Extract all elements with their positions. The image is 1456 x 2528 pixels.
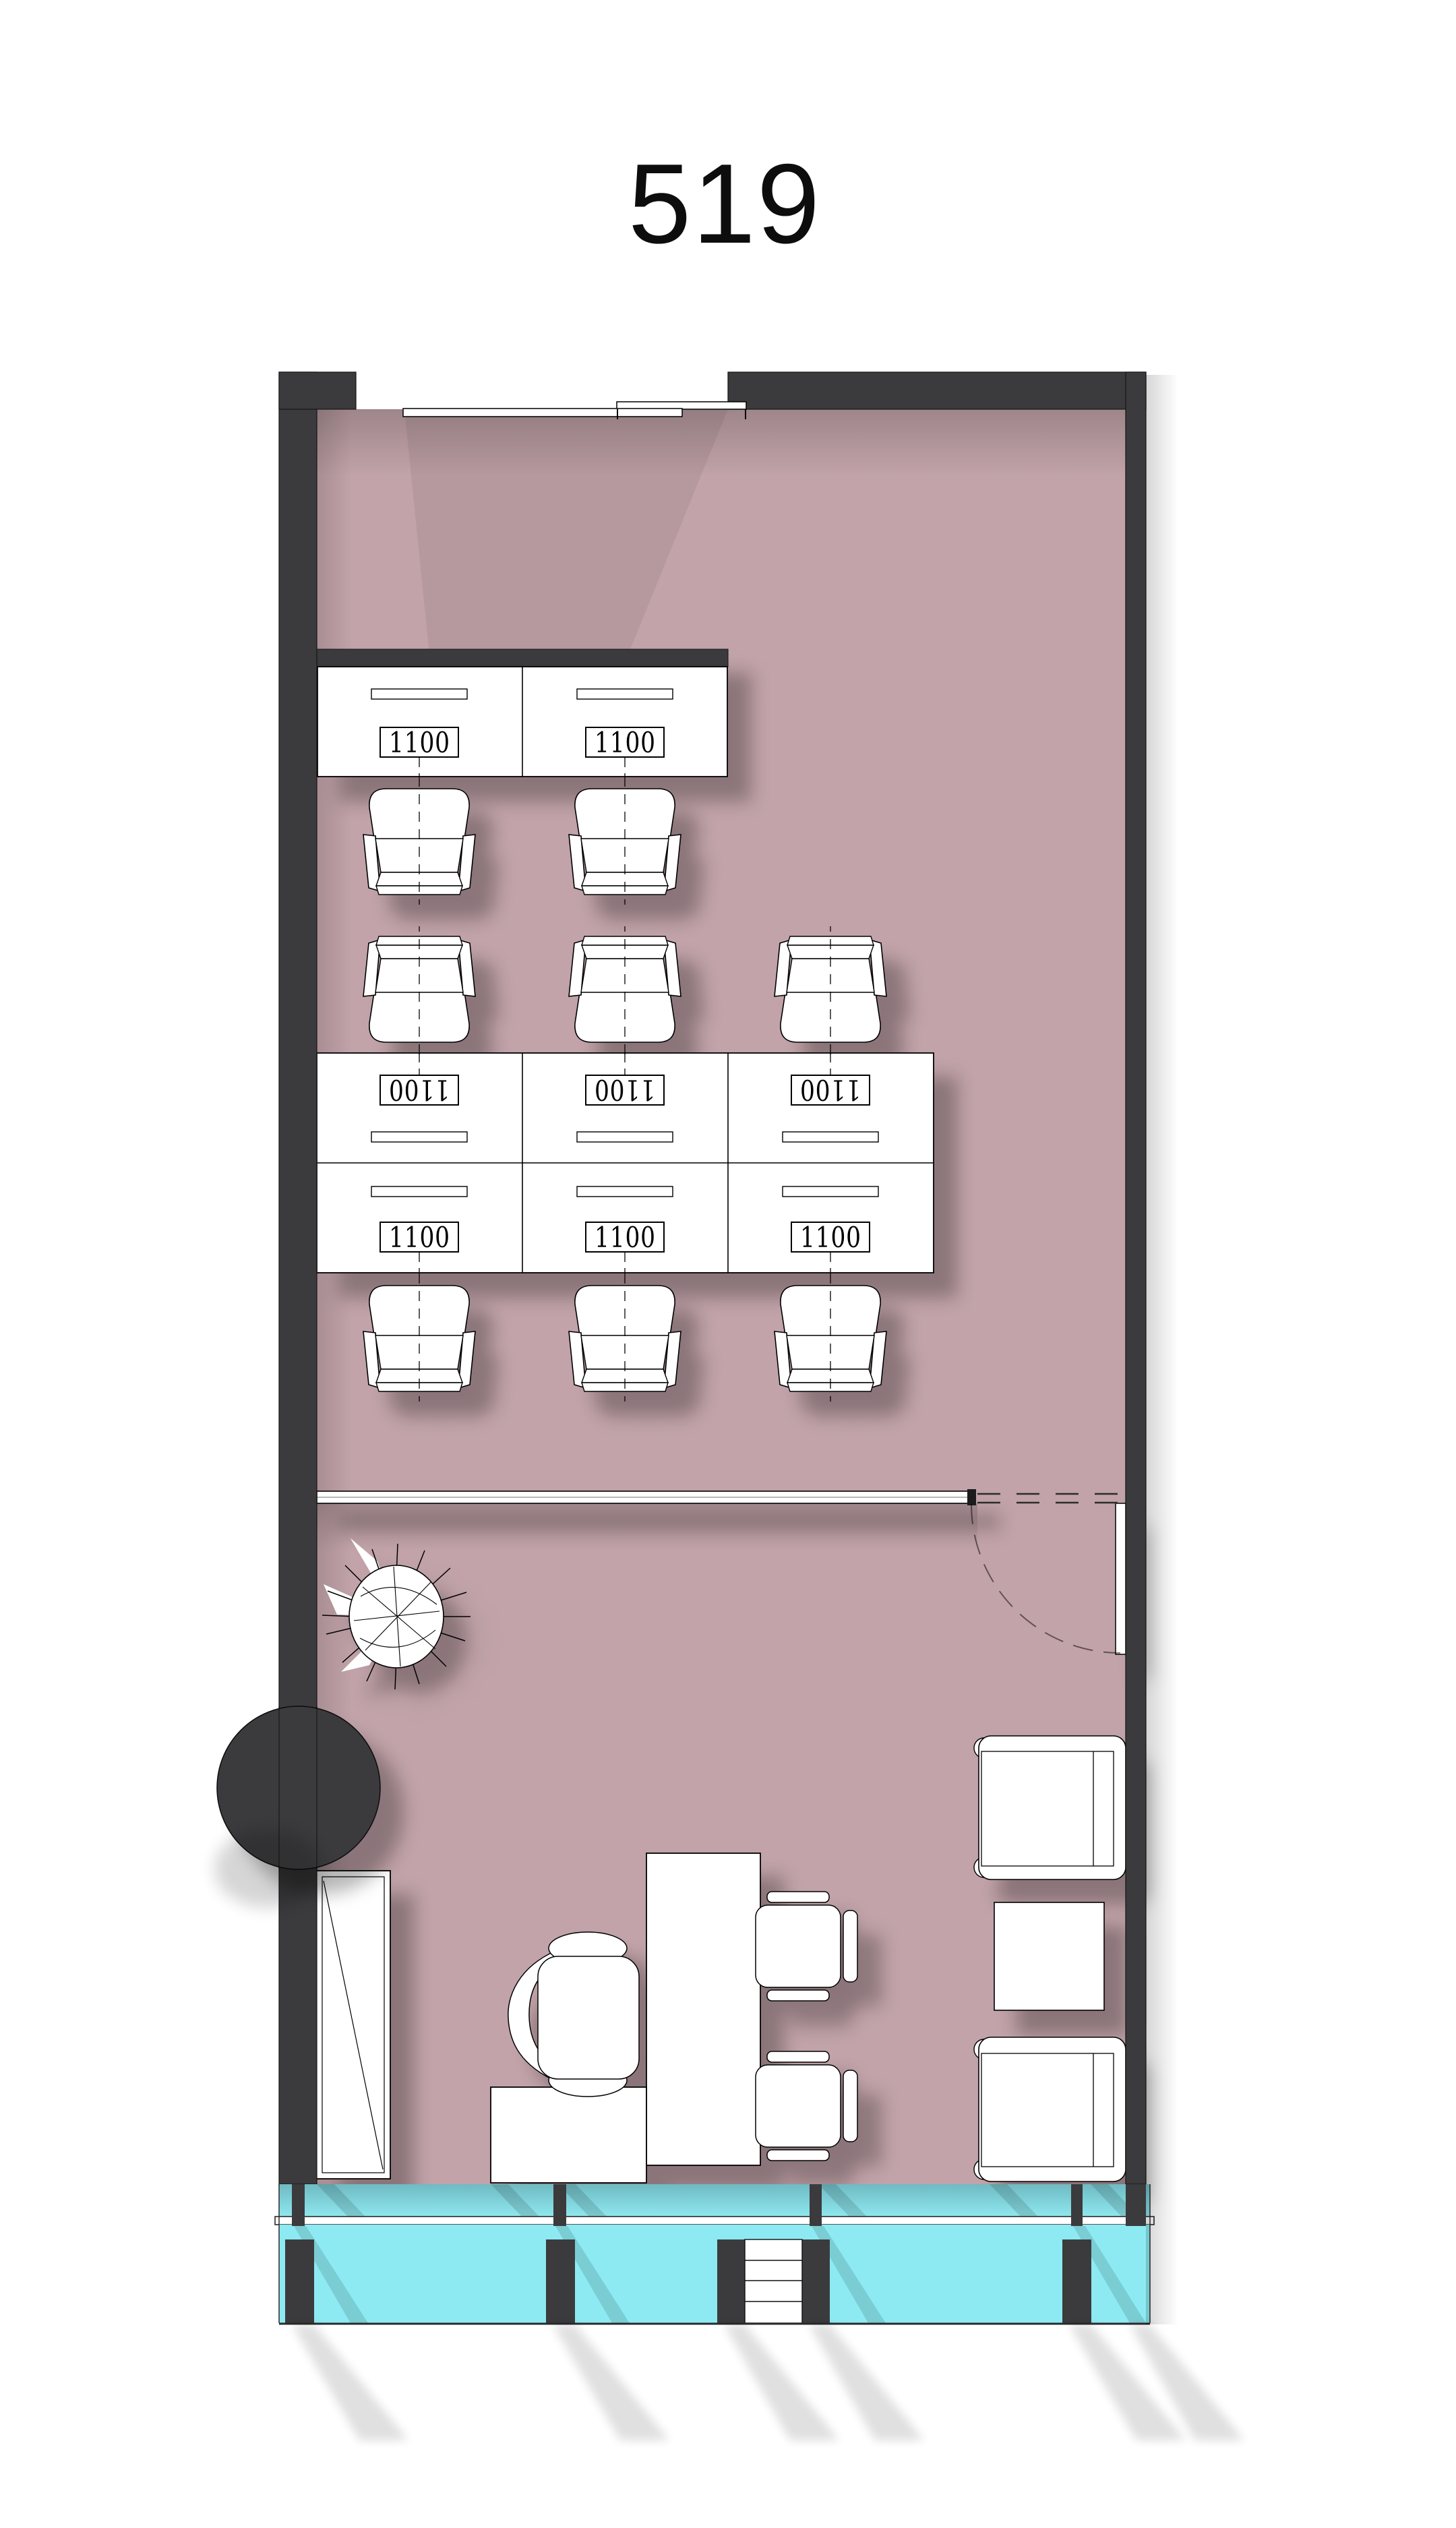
executive-desk	[646, 1853, 760, 2165]
task-chair	[363, 926, 475, 1054]
window-mullion	[285, 2239, 314, 2323]
balcony-glazing	[275, 2184, 1154, 2324]
lounge-unit	[974, 2037, 1126, 2181]
window-mullion	[802, 2239, 830, 2323]
room-number-title: 519	[590, 147, 859, 260]
window-mullion	[810, 2184, 822, 2226]
desk-dimension-label: 1100	[791, 1075, 870, 1106]
desk-tray-slot	[577, 689, 673, 699]
top-wall-left	[279, 372, 356, 409]
right-wall	[1126, 372, 1146, 2184]
desk-return	[491, 2087, 646, 2183]
desk-dimension-label: 1100	[380, 1222, 459, 1253]
task-chair	[569, 1273, 681, 1402]
task-chair	[363, 777, 475, 905]
desk-tray-slot	[577, 1186, 673, 1197]
desk-tray-slot	[783, 1132, 878, 1142]
door-leaf	[1116, 1503, 1126, 1654]
window-mullion	[546, 2239, 575, 2323]
partition-end-post	[967, 1489, 976, 1505]
window-mullion	[292, 2184, 305, 2226]
exterior-shadows	[292, 2324, 1244, 2440]
column-shadow	[214, 1830, 322, 1908]
desk-tray-slot	[577, 1132, 673, 1142]
floor-plan-drawing	[0, 0, 1456, 2528]
lounge-unit	[974, 1736, 1126, 1879]
window-mullion	[553, 2184, 566, 2226]
stairs	[745, 2239, 802, 2323]
desk-dimension-label: 1100	[585, 1222, 665, 1253]
desk-tray-slot	[371, 1186, 467, 1197]
desk-tray-slot	[371, 689, 467, 699]
desk-tray-slot	[371, 1132, 467, 1142]
right-wall-outer-shadow	[1146, 375, 1178, 2324]
window-mullion	[1071, 2184, 1083, 2226]
task-chair	[775, 1273, 886, 1402]
window-mullion	[1126, 2184, 1146, 2226]
task-chair	[569, 777, 681, 905]
desk-row-top	[317, 667, 727, 777]
window-mullion	[1062, 2239, 1091, 2323]
interior-partition-wall	[317, 649, 728, 667]
task-chair	[363, 1273, 475, 1402]
desk-dimension-label: 1100	[585, 727, 665, 758]
desk-dimension-label: 1100	[380, 1075, 459, 1106]
cabinet	[316, 1871, 390, 2179]
left-wall	[279, 372, 317, 2184]
desk-dimension-label: 1100	[791, 1222, 870, 1253]
balustrade-rail	[275, 2217, 1154, 2225]
desk-dimension-label: 1100	[380, 727, 459, 758]
glass-lower-row	[279, 2225, 1150, 2323]
task-chair	[775, 926, 886, 1054]
top-wall-right	[728, 372, 1146, 409]
side-table	[994, 1902, 1104, 2010]
glazed-partition	[317, 1489, 976, 1505]
task-chair	[569, 926, 681, 1054]
desk-dimension-label: 1100	[585, 1075, 665, 1106]
floor-plan-page: 519 1100 1100 1100 1100 1100 1100 1100 1…	[0, 0, 1456, 2528]
desk-tray-slot	[783, 1186, 878, 1197]
window-mullion	[717, 2239, 745, 2323]
